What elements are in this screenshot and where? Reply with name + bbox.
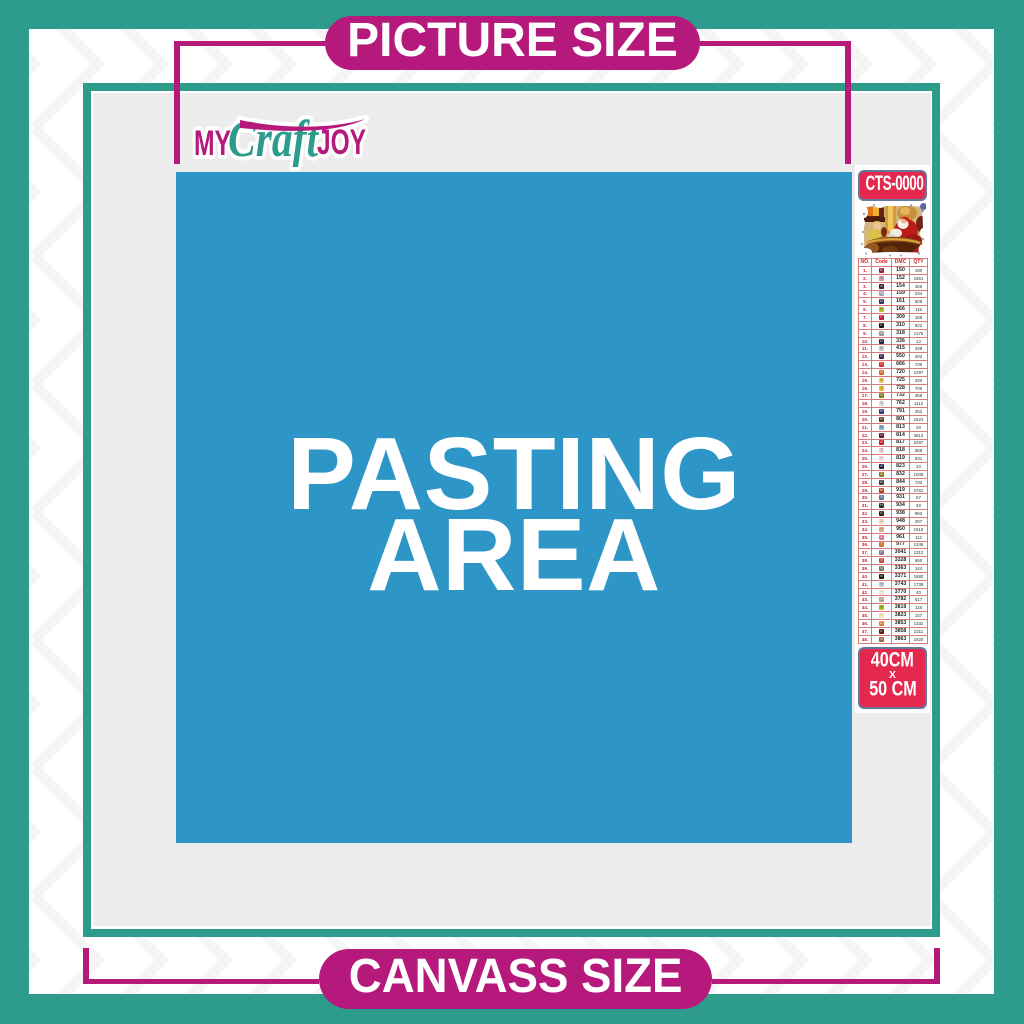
svg-text:MY: MY bbox=[194, 124, 231, 163]
svg-text:Craft: Craft bbox=[228, 111, 319, 168]
